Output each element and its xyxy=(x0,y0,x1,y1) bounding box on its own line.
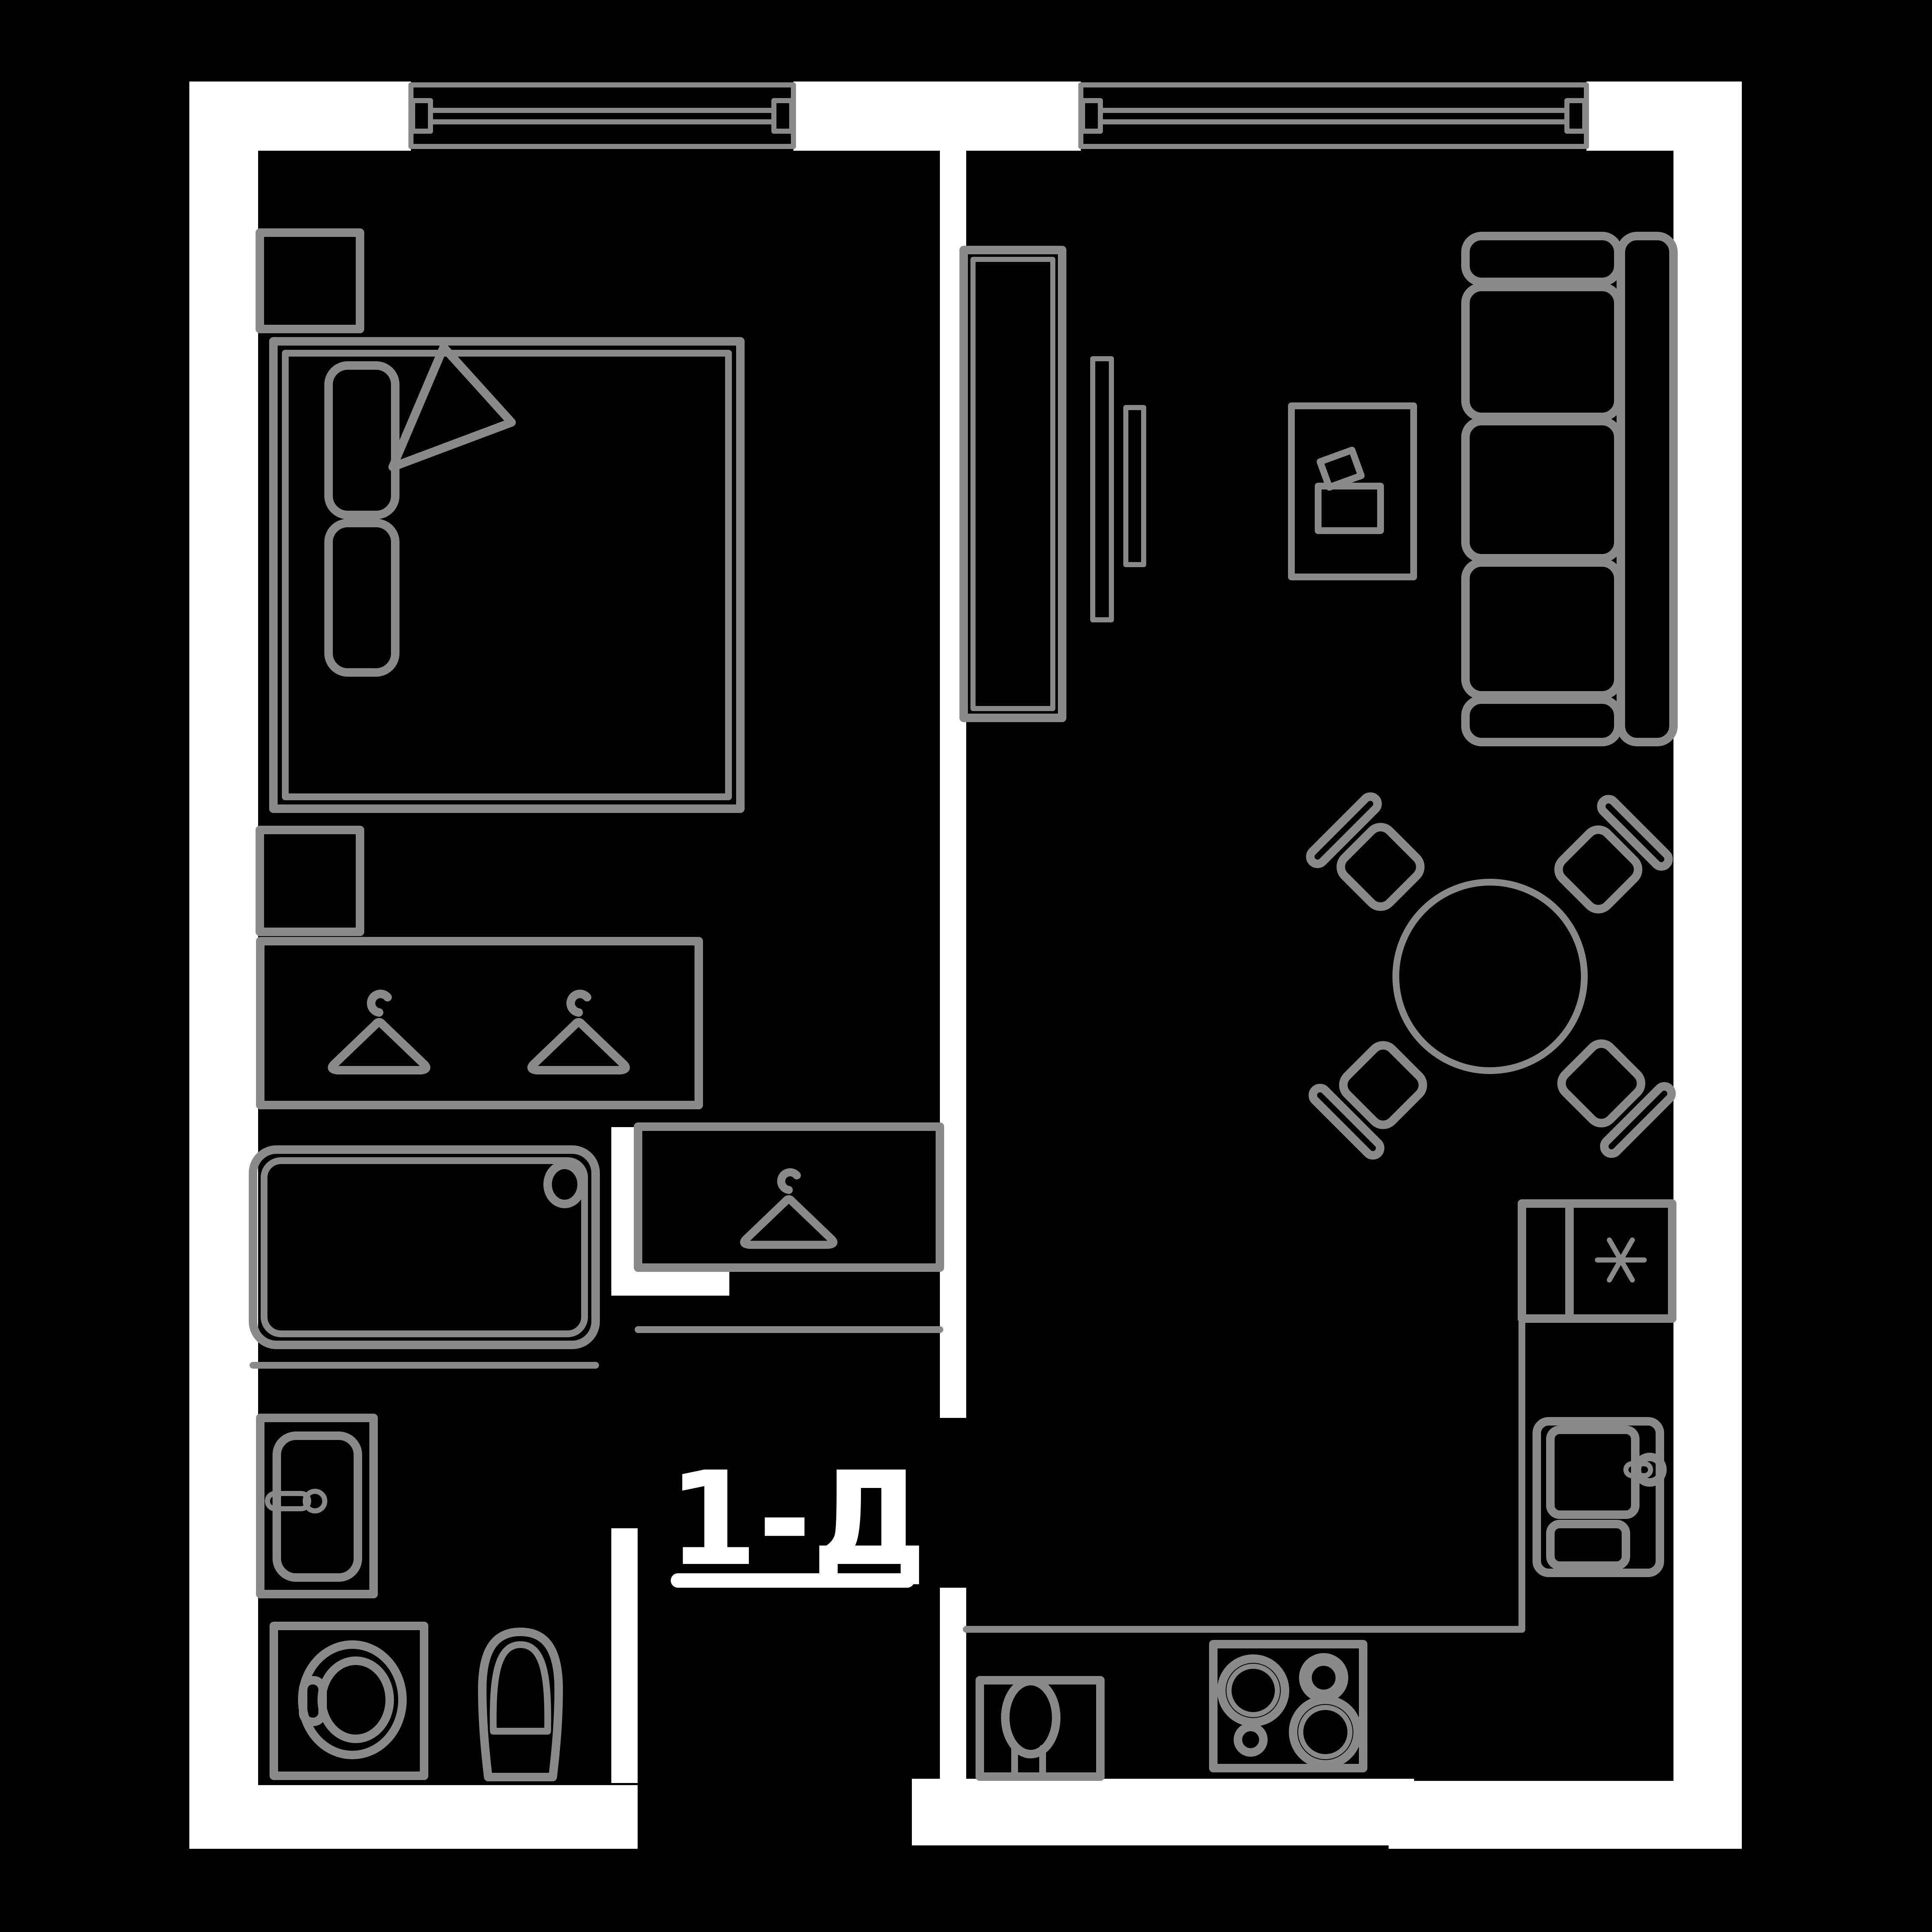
wall-bottom-right xyxy=(1389,1781,1742,1849)
wall-right xyxy=(1673,82,1742,1849)
wall-top-middle xyxy=(793,82,1081,151)
wall-left xyxy=(189,82,258,1849)
wall-bottom-middle xyxy=(912,1779,1414,1845)
unit-label-underline xyxy=(671,1573,914,1588)
wall-hall-kitchen-stub xyxy=(940,1588,966,1781)
floor-plan: 1-Д xyxy=(0,0,1932,1932)
floor-plan-canvas: 1-Д xyxy=(0,0,1932,1932)
unit-label: 1-Д xyxy=(668,1444,927,1595)
wall-bathroom-jamb xyxy=(611,1271,729,1296)
wall-bathroom-lower xyxy=(611,1528,638,1783)
unit-label-text: 1-Д xyxy=(668,1444,927,1595)
wall-bottom-left xyxy=(189,1785,638,1849)
wall-bathroom-upper xyxy=(611,1127,638,1280)
